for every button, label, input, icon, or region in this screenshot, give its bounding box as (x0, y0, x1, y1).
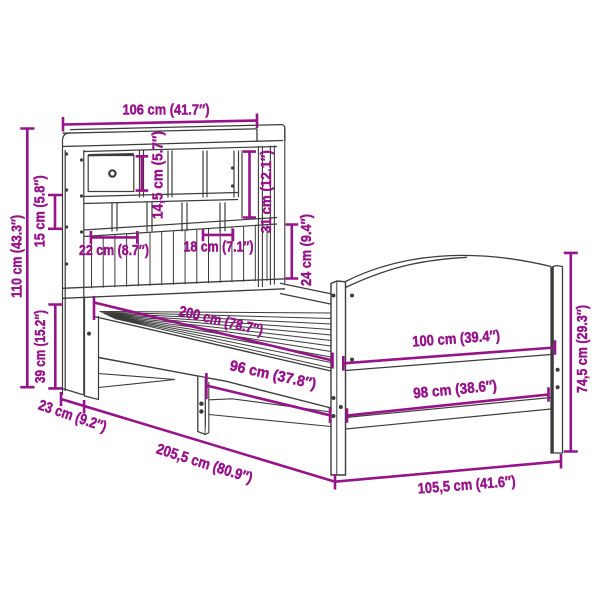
svg-text:106 cm (41.7″): 106 cm (41.7″) (123, 102, 210, 119)
svg-text:14,5 cm (5.7″): 14,5 cm (5.7″) (150, 131, 167, 219)
svg-text:22 cm (8.7″): 22 cm (8.7″) (79, 242, 149, 259)
svg-text:39 cm (15.2″): 39 cm (15.2″) (32, 310, 49, 383)
svg-text:74,5 cm (29.3″): 74,5 cm (29.3″) (574, 305, 591, 393)
svg-text:31 cm (12.1″): 31 cm (12.1″) (258, 150, 275, 233)
svg-text:18 cm (7.1″): 18 cm (7.1″) (184, 239, 254, 256)
svg-text:24 cm (9.4″): 24 cm (9.4″) (298, 214, 315, 286)
svg-text:110 cm (43.3″): 110 cm (43.3″) (9, 215, 26, 298)
svg-text:15 cm (5.8″): 15 cm (5.8″) (32, 175, 49, 247)
